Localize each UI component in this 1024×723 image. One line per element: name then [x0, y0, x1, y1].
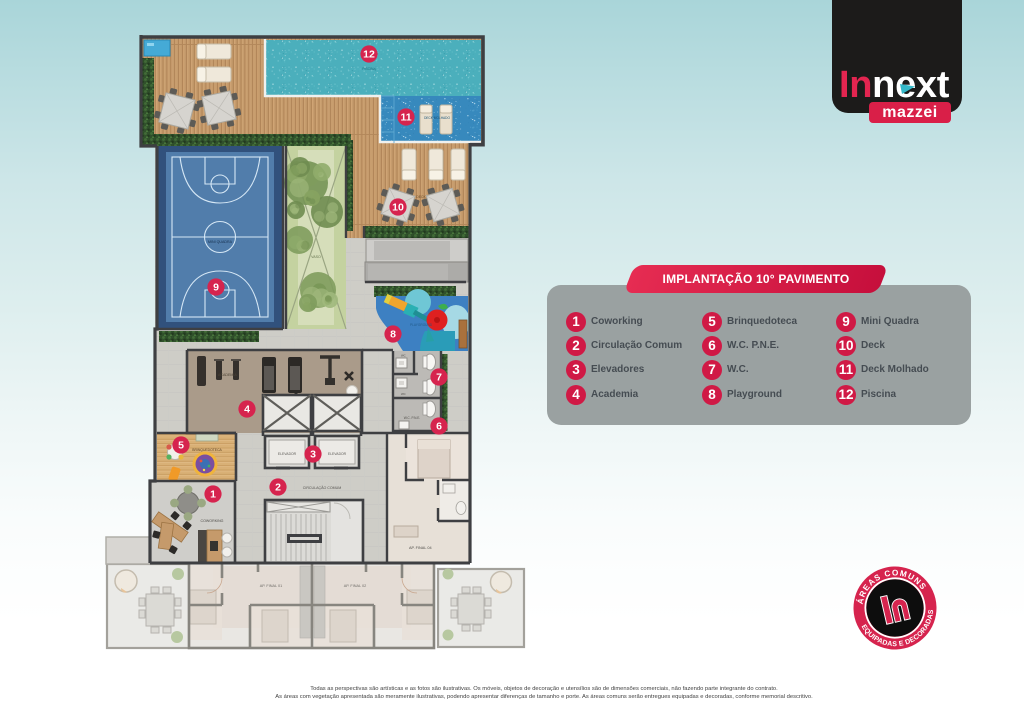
svg-text:ELEVADOR: ELEVADOR [328, 452, 347, 456]
svg-text:9: 9 [213, 281, 219, 293]
svg-text:ELEVADOR: ELEVADOR [278, 452, 297, 456]
svg-text:PISCINA: PISCINA [362, 67, 376, 71]
svg-text:MINI QUADRA: MINI QUADRA [208, 240, 233, 244]
svg-text:CIRCULAÇÃO COMUM: CIRCULAÇÃO COMUM [303, 485, 342, 490]
svg-text:WC: WC [401, 354, 406, 358]
svg-text:7: 7 [436, 371, 442, 383]
svg-text:12: 12 [363, 48, 375, 60]
svg-text:AP. FINAL 01: AP. FINAL 01 [260, 584, 283, 588]
svg-text:COWORKING: COWORKING [201, 519, 224, 523]
svg-text:1: 1 [210, 488, 216, 500]
svg-text:DECK MOLHADO: DECK MOLHADO [424, 116, 450, 120]
svg-text:5: 5 [178, 439, 184, 451]
svg-text:ACADEMIA: ACADEMIA [218, 373, 237, 377]
svg-text:AP. FINAL 02: AP. FINAL 02 [344, 584, 367, 588]
svg-text:10: 10 [392, 201, 404, 213]
svg-text:WC: WC [401, 392, 406, 396]
svg-text:11: 11 [400, 111, 411, 123]
svg-text:BRINQUEDOTECA: BRINQUEDOTECA [192, 448, 222, 452]
svg-text:4: 4 [244, 403, 250, 415]
svg-text:DECK: DECK [416, 195, 426, 199]
svg-text:6: 6 [436, 420, 442, 432]
svg-text:2: 2 [275, 481, 281, 493]
svg-text:AP. FINAL 04: AP. FINAL 04 [409, 546, 432, 550]
svg-text:PLAYGROUND: PLAYGROUND [410, 323, 433, 327]
svg-text:W.C. P.N.E.: W.C. P.N.E. [404, 416, 421, 420]
svg-text:3: 3 [310, 448, 316, 460]
svg-text:VASO: VASO [311, 255, 321, 259]
svg-text:8: 8 [390, 328, 396, 340]
